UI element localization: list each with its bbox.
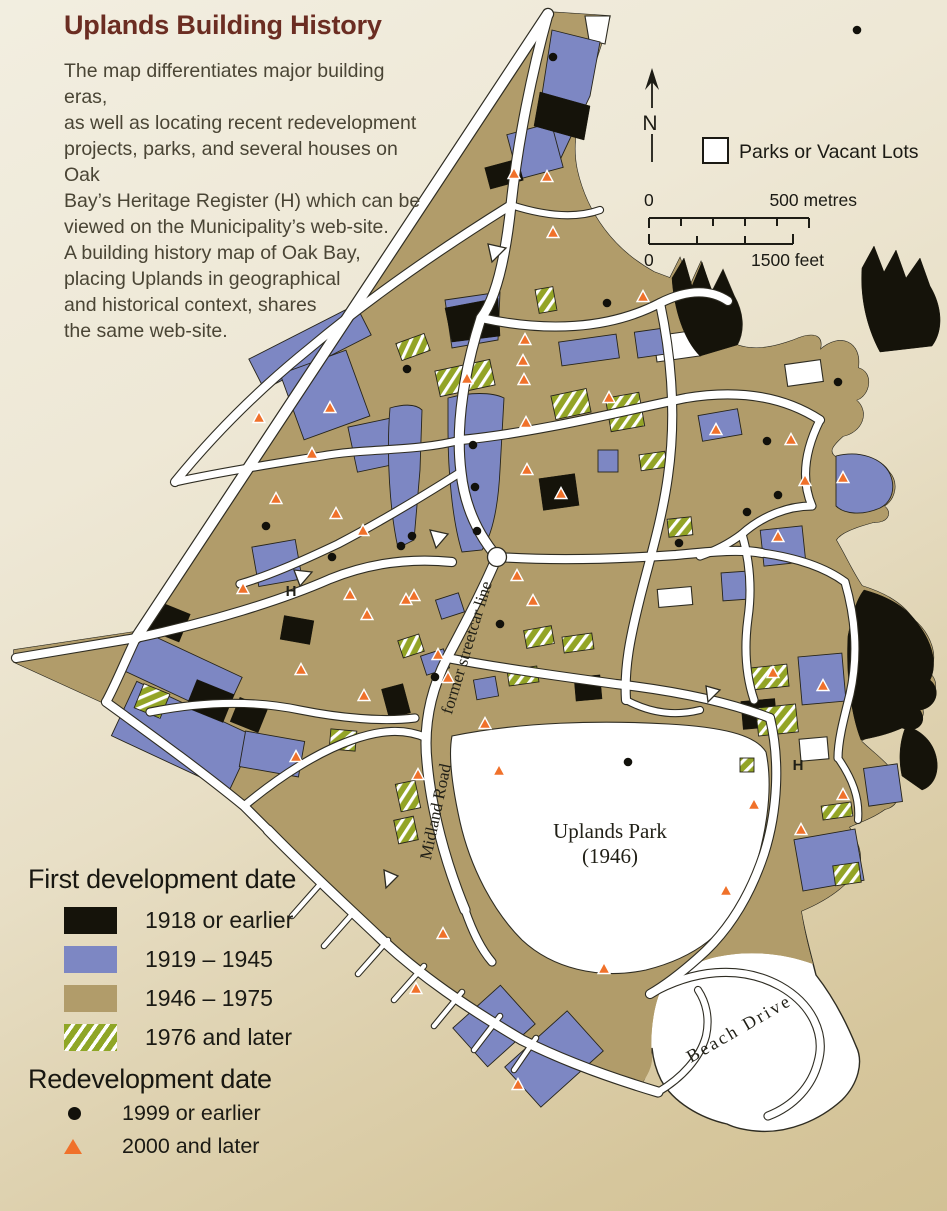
swatch-1919-1945 [64, 946, 117, 973]
legend-label: 1976 and later [145, 1024, 292, 1051]
redevelopment-dot [603, 299, 612, 308]
vacant-lot [657, 587, 692, 608]
redevelopment-legend: 1999 or earlier 2000 and later [62, 1097, 261, 1163]
redevelopment-triangle [253, 412, 265, 423]
legend-label: 1919 – 1945 [145, 946, 273, 973]
redevelopment-dot [473, 527, 482, 536]
redevelopment-dot [471, 483, 480, 492]
heritage-marker-1: H [286, 583, 297, 600]
legend-label: 1946 – 1975 [145, 985, 273, 1012]
redevelopment-dot [469, 441, 478, 450]
redevelopment-dot [774, 491, 783, 500]
uplands-park-label: Uplands Park [553, 819, 667, 843]
redevelopment-dot [834, 378, 843, 387]
development-legend-heading: First development date [28, 864, 296, 895]
redevelopment-dot [853, 26, 862, 35]
redevelopment-dot [763, 437, 772, 446]
legend-row-1946-1975: 1946 – 1975 [64, 979, 293, 1018]
north-label: N [642, 112, 657, 135]
redev-triangle-icon [64, 1139, 82, 1154]
redevelopment-dot [403, 365, 412, 374]
vacant-lot [785, 360, 824, 387]
parks-legend-label: Parks or Vacant Lots [739, 141, 919, 163]
scale-bars: 0 500 metres 0 1500 feet [644, 190, 857, 270]
redevelopment-dot [624, 758, 633, 767]
scale-ft-max: 1500 feet [751, 250, 824, 270]
redevelopment-dot [743, 508, 752, 517]
parks-legend: Parks or Vacant Lots [703, 138, 919, 163]
legend-label: 2000 and later [122, 1134, 259, 1159]
roundabout [488, 548, 507, 567]
redevelopment-dot [496, 620, 505, 629]
heritage-marker-2: H [793, 757, 804, 774]
north-arrow: N [642, 68, 659, 162]
scale-ft-zero: 0 [644, 250, 654, 270]
scale-m-zero: 0 [644, 190, 654, 210]
redevelopment-dot [397, 542, 406, 551]
scale-m-max: 500 metres [769, 190, 857, 210]
redevelopment-dot [549, 53, 558, 62]
swatch-1918-or-earlier [64, 907, 117, 934]
redevelopment-dot [328, 553, 337, 562]
redevelopment-dot [675, 539, 684, 548]
intro-paragraph: The map differentiates major building er… [64, 58, 424, 344]
swatch-1946-1975 [64, 985, 117, 1012]
vacant-lot [799, 737, 829, 761]
scanned-map-page: { "title": "Uplands Building History", "… [0, 0, 947, 1211]
legend-row-1918: 1918 or earlier [64, 901, 293, 940]
parks-swatch [703, 138, 728, 163]
redevelopment-dot [262, 522, 271, 531]
uplands-park-year: (1946) [582, 844, 638, 868]
redevelopment-legend-heading: Redevelopment date [28, 1064, 272, 1095]
dot-symbol-wrap [62, 1107, 96, 1120]
legend-row-dot: 1999 or earlier [62, 1097, 261, 1130]
redev-dot-icon [68, 1107, 81, 1120]
redevelopment-dot [431, 673, 440, 682]
page-title: Uplands Building History [64, 10, 382, 41]
development-legend: 1918 or earlier 1919 – 1945 1946 – 1975 … [64, 901, 293, 1057]
legend-row-triangle: 2000 and later [62, 1130, 261, 1163]
triangle-symbol-wrap [62, 1139, 96, 1154]
legend-label: 1918 or earlier [145, 907, 293, 934]
legend-label: 1999 or earlier [122, 1101, 261, 1126]
legend-row-1919-1945: 1919 – 1945 [64, 940, 293, 979]
redevelopment-dot [408, 532, 417, 541]
legend-row-1976-later: 1976 and later [64, 1018, 293, 1057]
swatch-1976-and-later [64, 1024, 117, 1051]
